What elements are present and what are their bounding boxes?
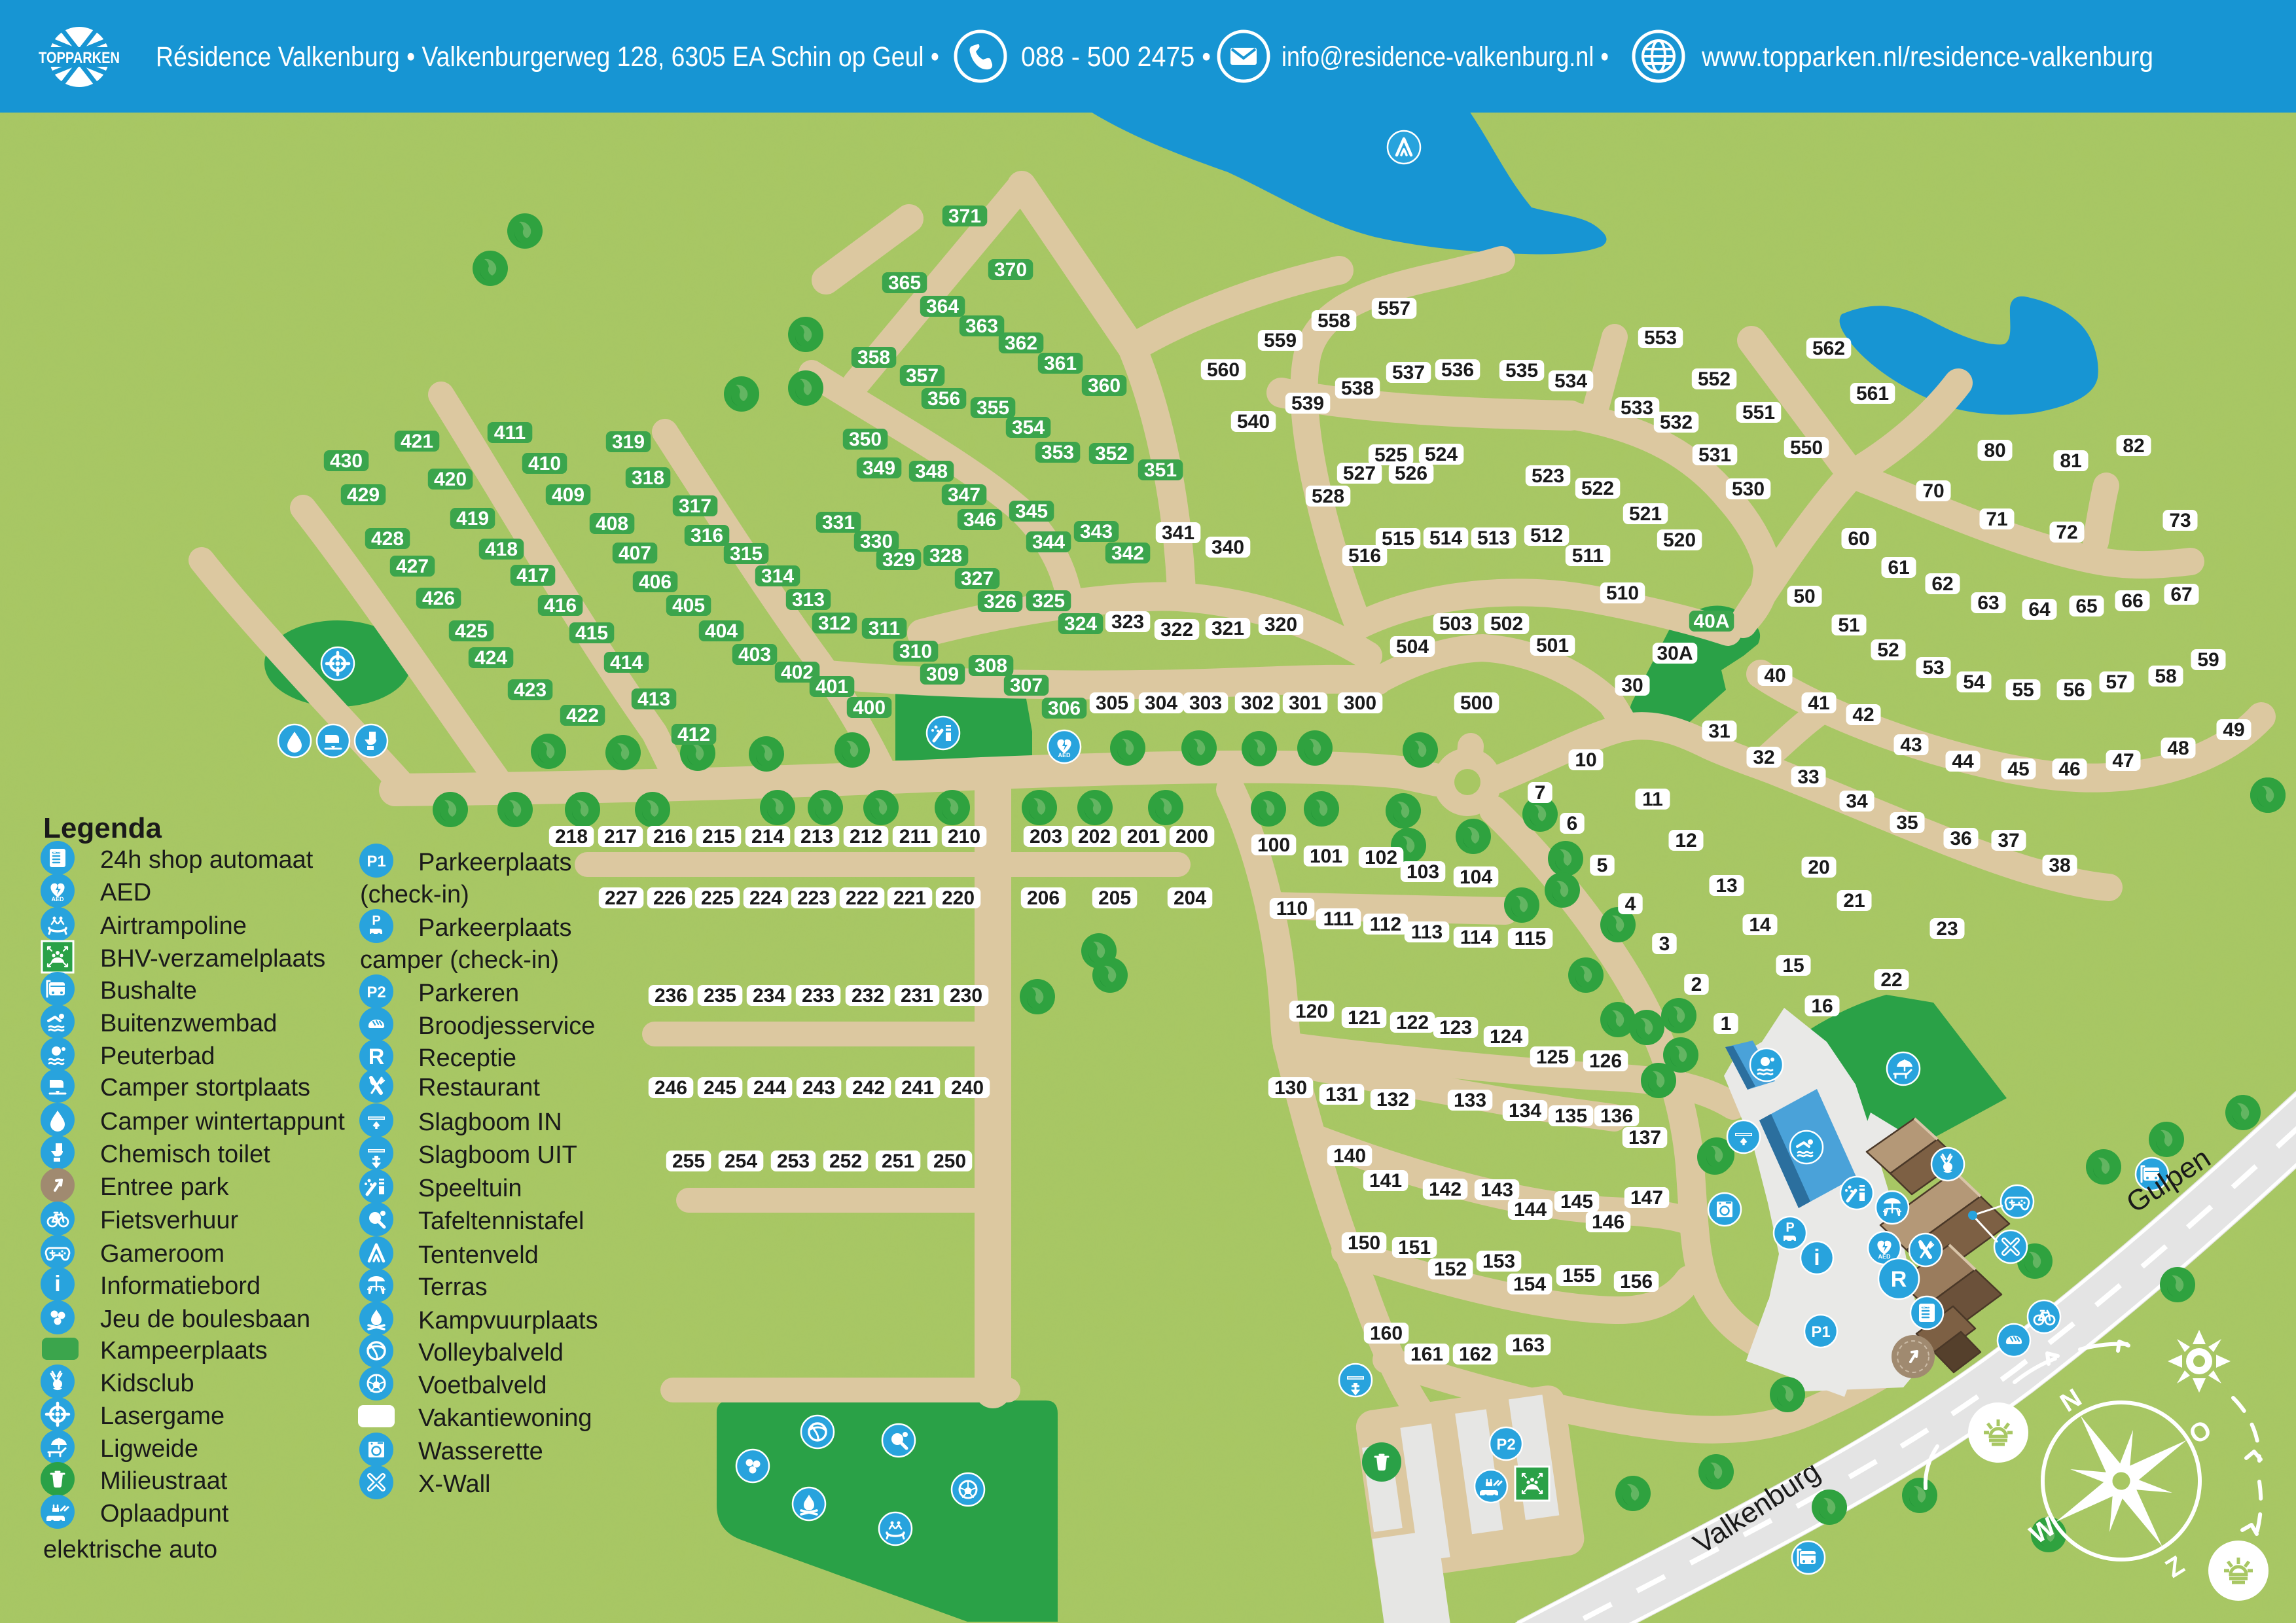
svg-text:341: 341 — [1162, 522, 1194, 544]
svg-text:4: 4 — [1625, 893, 1636, 915]
svg-text:211: 211 — [899, 826, 931, 847]
svg-text:42: 42 — [1852, 704, 1874, 726]
svg-text:408: 408 — [596, 513, 628, 535]
svg-text:217: 217 — [604, 826, 637, 847]
svg-text:1: 1 — [1721, 1013, 1732, 1035]
svg-text:523: 523 — [1532, 465, 1564, 487]
svg-text:243: 243 — [802, 1077, 835, 1099]
svg-text:126: 126 — [1589, 1050, 1622, 1072]
svg-text:315: 315 — [730, 543, 762, 565]
svg-text:141: 141 — [1369, 1170, 1402, 1192]
svg-text:525: 525 — [1374, 444, 1407, 466]
svg-text:534: 534 — [1554, 370, 1587, 392]
svg-text:350: 350 — [849, 429, 882, 450]
svg-text:413: 413 — [637, 688, 670, 710]
svg-text:Ligweide: Ligweide — [100, 1435, 198, 1463]
svg-text:22: 22 — [1880, 969, 1902, 991]
svg-text:P2: P2 — [1496, 1436, 1515, 1454]
svg-text:215: 215 — [702, 826, 735, 847]
svg-text:511: 511 — [1572, 545, 1604, 567]
svg-text:241: 241 — [901, 1077, 934, 1099]
svg-text:513: 513 — [1477, 527, 1510, 549]
svg-text:57: 57 — [2106, 671, 2127, 693]
svg-text:415: 415 — [575, 622, 608, 644]
svg-text:59: 59 — [2197, 649, 2219, 671]
svg-text:501: 501 — [1536, 635, 1569, 656]
svg-text:531: 531 — [1698, 444, 1731, 466]
svg-text:71: 71 — [1986, 508, 2007, 530]
svg-text:Voetbalveld: Voetbalveld — [418, 1372, 547, 1399]
svg-text:130: 130 — [1274, 1077, 1307, 1099]
svg-text:154: 154 — [1513, 1274, 1546, 1295]
svg-text:356: 356 — [927, 388, 960, 410]
svg-text:www.topparken.nl/residence-val: www.topparken.nl/residence-valkenburg — [1701, 41, 2153, 73]
svg-text:402: 402 — [781, 662, 814, 683]
svg-text:539: 539 — [1291, 393, 1324, 414]
svg-text:6: 6 — [1567, 813, 1578, 834]
svg-text:202: 202 — [1078, 826, 1111, 847]
svg-text:14: 14 — [1749, 914, 1771, 936]
svg-text:10: 10 — [1575, 749, 1596, 771]
svg-text:246: 246 — [655, 1077, 687, 1099]
svg-text:423: 423 — [514, 679, 547, 701]
svg-text:419: 419 — [456, 508, 489, 529]
svg-text:Buitenzwembad: Buitenzwembad — [100, 1010, 277, 1037]
svg-text:44: 44 — [1952, 751, 1974, 772]
svg-text:33: 33 — [1797, 766, 1819, 788]
svg-text:201: 201 — [1127, 826, 1160, 847]
svg-text:418: 418 — [485, 539, 518, 560]
svg-text:Legenda: Legenda — [43, 812, 162, 844]
svg-text:302: 302 — [1241, 692, 1274, 714]
svg-text:30A: 30A — [1657, 643, 1693, 664]
svg-text:213: 213 — [800, 826, 833, 847]
svg-text:342: 342 — [1111, 543, 1144, 564]
svg-text:214: 214 — [751, 826, 784, 847]
svg-text:81: 81 — [2060, 450, 2081, 472]
svg-text:Vakantiewoning: Vakantiewoning — [418, 1404, 592, 1432]
svg-text:12: 12 — [1675, 830, 1696, 851]
svg-text:34: 34 — [1846, 791, 1868, 812]
svg-text:X-Wall: X-Wall — [418, 1471, 490, 1498]
svg-text:522: 522 — [1581, 478, 1614, 499]
svg-text:Bushalte: Bushalte — [100, 977, 197, 1005]
svg-text:16: 16 — [1811, 995, 1833, 1017]
svg-text:142: 142 — [1429, 1179, 1462, 1200]
svg-text:351: 351 — [1144, 459, 1177, 481]
svg-text:560: 560 — [1207, 359, 1240, 381]
svg-text:226: 226 — [653, 887, 686, 909]
svg-text:206: 206 — [1027, 887, 1060, 909]
svg-text:41: 41 — [1808, 692, 1829, 714]
svg-text:122: 122 — [1396, 1012, 1429, 1033]
svg-text:24h: 24h — [53, 848, 62, 854]
svg-text:Milieustraat: Milieustraat — [100, 1467, 228, 1495]
svg-text:203: 203 — [1030, 826, 1062, 847]
svg-text:49: 49 — [2223, 719, 2244, 741]
svg-text:521: 521 — [1629, 503, 1662, 525]
svg-text:58: 58 — [2155, 666, 2176, 687]
svg-text:224: 224 — [749, 887, 782, 909]
svg-text:40: 40 — [1764, 665, 1785, 687]
svg-text:312: 312 — [818, 613, 851, 634]
svg-text:361: 361 — [1044, 353, 1077, 374]
svg-text:303: 303 — [1189, 692, 1222, 714]
svg-text:411: 411 — [494, 422, 526, 444]
svg-text:346: 346 — [963, 509, 996, 531]
svg-text:Volleybalveld: Volleybalveld — [418, 1339, 564, 1366]
svg-text:552: 552 — [1698, 368, 1731, 390]
svg-text:Terras: Terras — [418, 1274, 488, 1301]
svg-text:221: 221 — [893, 887, 926, 909]
svg-text:5: 5 — [1597, 855, 1608, 876]
svg-text:218: 218 — [555, 826, 588, 847]
svg-text:elektrische auto: elektrische auto — [43, 1536, 217, 1563]
svg-text:425: 425 — [455, 620, 488, 642]
svg-text:210: 210 — [948, 826, 980, 847]
svg-text:504: 504 — [1396, 636, 1429, 658]
svg-text:354: 354 — [1012, 417, 1045, 438]
svg-text:223: 223 — [797, 887, 830, 909]
svg-text:P: P — [1785, 1221, 1794, 1235]
svg-text:427: 427 — [396, 556, 429, 577]
svg-text:409: 409 — [552, 484, 584, 506]
svg-text:Gameroom: Gameroom — [100, 1240, 224, 1268]
svg-text:38: 38 — [2049, 855, 2070, 876]
svg-text:242: 242 — [852, 1077, 885, 1099]
svg-text:info@residence-valkenburg.nl •: info@residence-valkenburg.nl • — [1282, 41, 1609, 73]
svg-text:62: 62 — [1931, 573, 1953, 595]
svg-text:405: 405 — [672, 595, 705, 616]
svg-text:314: 314 — [761, 565, 794, 587]
svg-text:403: 403 — [738, 644, 771, 666]
svg-text:152: 152 — [1434, 1258, 1467, 1280]
svg-text:550: 550 — [1790, 437, 1823, 459]
svg-text:234: 234 — [753, 985, 785, 1007]
svg-text:307: 307 — [1010, 675, 1043, 696]
svg-text:Fietsverhuur: Fietsverhuur — [100, 1207, 239, 1234]
svg-text:40A: 40A — [1693, 611, 1729, 632]
svg-text:camper (check-in): camper (check-in) — [360, 946, 559, 974]
svg-text:300: 300 — [1344, 692, 1376, 714]
svg-text:320: 320 — [1265, 614, 1297, 635]
svg-text:AED: AED — [1878, 1253, 1891, 1260]
svg-text:406: 406 — [639, 571, 672, 593]
svg-text:(check-in): (check-in) — [360, 881, 469, 908]
svg-text:Entree park: Entree park — [100, 1173, 229, 1201]
svg-text:325: 325 — [1032, 590, 1065, 612]
svg-text:362: 362 — [1005, 332, 1037, 354]
svg-text:245: 245 — [704, 1077, 736, 1099]
svg-text:113: 113 — [1411, 921, 1443, 943]
svg-text:561: 561 — [1856, 383, 1889, 404]
svg-text:Airtrampoline: Airtrampoline — [100, 912, 247, 940]
svg-text:421: 421 — [401, 431, 433, 452]
svg-text:52: 52 — [1877, 639, 1899, 661]
svg-text:236: 236 — [655, 985, 687, 1007]
svg-text:124: 124 — [1490, 1026, 1522, 1048]
svg-text:TOPPARKEN: TOPPARKEN — [39, 49, 120, 67]
svg-text:54: 54 — [1963, 671, 1985, 693]
svg-text:Slagboom IN: Slagboom IN — [418, 1109, 562, 1136]
svg-text:502: 502 — [1490, 613, 1523, 635]
svg-text:535: 535 — [1505, 360, 1538, 382]
svg-text:125: 125 — [1536, 1046, 1569, 1068]
svg-text:51: 51 — [1838, 615, 1859, 636]
svg-text:301: 301 — [1289, 692, 1321, 714]
svg-text:559: 559 — [1264, 330, 1297, 351]
svg-text:424: 424 — [475, 647, 507, 669]
svg-text:530: 530 — [1732, 478, 1765, 500]
svg-text:414: 414 — [610, 652, 643, 673]
svg-text:132: 132 — [1376, 1089, 1409, 1111]
svg-text:420: 420 — [434, 469, 467, 490]
svg-text:3: 3 — [1659, 933, 1670, 955]
svg-text:251: 251 — [882, 1150, 914, 1172]
svg-text:143: 143 — [1480, 1179, 1513, 1201]
svg-text:47: 47 — [2112, 750, 2134, 772]
svg-text:254: 254 — [725, 1150, 757, 1172]
svg-text:319: 319 — [612, 431, 645, 453]
svg-text:331: 331 — [822, 512, 855, 533]
svg-text:156: 156 — [1620, 1271, 1653, 1293]
svg-text:343: 343 — [1080, 521, 1113, 543]
svg-text:Camper stortplaats: Camper stortplaats — [100, 1074, 310, 1101]
svg-text:P1: P1 — [367, 853, 386, 870]
svg-text:401: 401 — [816, 676, 848, 698]
svg-text:306: 306 — [1048, 698, 1081, 719]
svg-text:430: 430 — [330, 450, 363, 472]
svg-text:311: 311 — [869, 618, 900, 639]
svg-text:70: 70 — [1922, 480, 1944, 502]
svg-text:205: 205 — [1098, 887, 1131, 909]
svg-text:240: 240 — [951, 1077, 984, 1099]
svg-text:160: 160 — [1370, 1323, 1403, 1344]
svg-text:510: 510 — [1606, 582, 1639, 604]
svg-text:317: 317 — [679, 495, 711, 517]
svg-text:AED: AED — [1058, 752, 1071, 758]
svg-text:67: 67 — [2170, 584, 2192, 605]
svg-text:Receptie: Receptie — [418, 1044, 516, 1072]
svg-text:115: 115 — [1515, 928, 1546, 950]
svg-text:P1: P1 — [1811, 1323, 1830, 1341]
svg-text:BHV-verzamelplaats: BHV-verzamelplaats — [100, 945, 325, 972]
svg-text:134: 134 — [1509, 1100, 1541, 1122]
svg-text:65: 65 — [2075, 596, 2097, 617]
svg-text:110: 110 — [1276, 898, 1308, 919]
svg-text:Jeu de boulesbaan: Jeu de boulesbaan — [100, 1306, 310, 1333]
svg-text:308: 308 — [975, 655, 1007, 677]
svg-text:227: 227 — [605, 887, 637, 909]
svg-text:358: 358 — [857, 347, 890, 368]
svg-text:102: 102 — [1365, 847, 1397, 868]
svg-text:Kampeerplaats: Kampeerplaats — [100, 1337, 268, 1364]
svg-text:Chemisch toilet: Chemisch toilet — [100, 1141, 270, 1168]
svg-text:45: 45 — [2007, 758, 2029, 780]
svg-text:348: 348 — [915, 461, 948, 482]
svg-text:133: 133 — [1454, 1090, 1486, 1111]
svg-text:43: 43 — [1900, 734, 1922, 756]
svg-text:352: 352 — [1095, 443, 1128, 465]
svg-text:2: 2 — [1691, 974, 1702, 995]
svg-text:233: 233 — [802, 985, 834, 1007]
svg-text:404: 404 — [705, 620, 738, 642]
svg-text:553: 553 — [1644, 327, 1677, 349]
svg-text:360: 360 — [1088, 375, 1121, 397]
svg-text:30: 30 — [1621, 675, 1643, 696]
svg-text:428: 428 — [371, 528, 404, 550]
svg-text:230: 230 — [950, 985, 982, 1007]
svg-text:345: 345 — [1015, 501, 1048, 522]
svg-text:309: 309 — [926, 664, 959, 685]
svg-text:212: 212 — [850, 826, 882, 847]
svg-text:232: 232 — [852, 985, 884, 1007]
svg-text:220: 220 — [942, 887, 975, 909]
svg-text:50: 50 — [1793, 586, 1815, 607]
svg-text:104: 104 — [1460, 866, 1492, 888]
svg-text:145: 145 — [1560, 1191, 1593, 1213]
svg-text:407: 407 — [619, 543, 651, 564]
svg-text:63: 63 — [1977, 592, 1999, 614]
svg-text:37: 37 — [1998, 830, 2019, 851]
svg-text:540: 540 — [1237, 411, 1270, 433]
svg-text:532: 532 — [1660, 412, 1693, 433]
svg-text:422: 422 — [566, 705, 599, 726]
svg-text:355: 355 — [977, 397, 1009, 419]
svg-text:Informatiebord: Informatiebord — [100, 1272, 260, 1300]
svg-text:AED: AED — [51, 896, 64, 902]
svg-text:Parkeren: Parkeren — [418, 980, 519, 1007]
svg-text:80: 80 — [1984, 440, 2005, 461]
svg-text:Parkeerplaats: Parkeerplaats — [418, 914, 571, 942]
svg-text:349: 349 — [863, 457, 895, 479]
svg-text:344: 344 — [1032, 531, 1065, 553]
svg-text:15: 15 — [1782, 955, 1804, 976]
svg-text:36: 36 — [1950, 828, 1971, 849]
svg-text:i: i — [54, 1272, 60, 1296]
svg-text:318: 318 — [632, 467, 664, 489]
svg-text:371: 371 — [948, 205, 981, 227]
svg-text:252: 252 — [829, 1150, 862, 1172]
svg-text:326: 326 — [984, 591, 1016, 613]
svg-text:7: 7 — [1535, 782, 1546, 804]
svg-text:225: 225 — [701, 887, 734, 909]
svg-text:AED: AED — [100, 879, 151, 906]
svg-text:253: 253 — [777, 1150, 810, 1172]
svg-text:Oplaadpunt: Oplaadpunt — [100, 1500, 229, 1527]
svg-text:316: 316 — [691, 525, 723, 546]
svg-text:329: 329 — [882, 549, 915, 571]
svg-text:Broodjesservice: Broodjesservice — [418, 1012, 595, 1040]
svg-text:72: 72 — [2056, 522, 2077, 543]
svg-text:60: 60 — [1848, 528, 1869, 550]
svg-text:Kampvuurplaats: Kampvuurplaats — [418, 1307, 598, 1334]
svg-text:538: 538 — [1341, 378, 1374, 399]
svg-text:365: 365 — [888, 272, 921, 294]
svg-text:Camper wintertappunt: Camper wintertappunt — [100, 1108, 345, 1135]
svg-text:111: 111 — [1323, 908, 1354, 930]
svg-text:31: 31 — [1708, 721, 1730, 742]
svg-text:304: 304 — [1145, 692, 1177, 714]
svg-text:551: 551 — [1742, 402, 1775, 423]
svg-text:313: 313 — [792, 589, 825, 611]
svg-text:426: 426 — [422, 588, 455, 609]
svg-text:R: R — [1891, 1267, 1907, 1292]
svg-text:24h: 24h — [1922, 1303, 1931, 1309]
svg-text:120: 120 — [1295, 1001, 1328, 1022]
svg-text:537: 537 — [1392, 362, 1425, 383]
svg-text:204: 204 — [1174, 887, 1206, 909]
svg-text:536: 536 — [1441, 359, 1474, 381]
svg-text:73: 73 — [2169, 510, 2191, 531]
svg-text:429: 429 — [347, 484, 380, 506]
svg-text:48: 48 — [2167, 738, 2189, 759]
svg-text:514: 514 — [1429, 527, 1462, 549]
svg-text:527: 527 — [1343, 463, 1376, 484]
svg-text:305: 305 — [1096, 692, 1128, 714]
svg-text:Résidence Valkenburg • Valkenb: Résidence Valkenburg • Valkenburgerweg 1… — [156, 41, 939, 73]
svg-text:400: 400 — [853, 697, 886, 719]
svg-text:515: 515 — [1382, 528, 1414, 550]
svg-text:11: 11 — [1642, 789, 1663, 810]
svg-text:Tafeltennistafel: Tafeltennistafel — [418, 1207, 584, 1235]
svg-text:416: 416 — [544, 595, 577, 616]
svg-text:121: 121 — [1348, 1007, 1380, 1029]
svg-text:364: 364 — [926, 296, 959, 317]
svg-text:520: 520 — [1663, 529, 1696, 551]
svg-text:147: 147 — [1630, 1187, 1663, 1209]
svg-text:558: 558 — [1318, 310, 1350, 332]
svg-text:150: 150 — [1348, 1232, 1380, 1254]
svg-text:363: 363 — [965, 315, 998, 337]
svg-text:135: 135 — [1554, 1105, 1587, 1127]
svg-text:322: 322 — [1160, 619, 1193, 641]
svg-text:357: 357 — [906, 365, 939, 387]
svg-text:112: 112 — [1370, 914, 1401, 935]
svg-text:533: 533 — [1621, 397, 1653, 419]
svg-text:562: 562 — [1812, 338, 1845, 359]
svg-text:516: 516 — [1348, 545, 1381, 567]
svg-text:370: 370 — [994, 259, 1027, 281]
svg-text:123: 123 — [1439, 1017, 1472, 1039]
svg-text:528: 528 — [1312, 486, 1344, 507]
svg-text:i: i — [1814, 1245, 1820, 1270]
svg-text:46: 46 — [2058, 758, 2080, 780]
svg-text:53: 53 — [1922, 657, 1944, 679]
svg-text:Tentenveld: Tentenveld — [418, 1241, 539, 1269]
svg-text:Kidsclub: Kidsclub — [100, 1370, 194, 1397]
svg-text:231: 231 — [901, 985, 933, 1007]
svg-text:328: 328 — [929, 545, 962, 567]
svg-text:13: 13 — [1715, 875, 1737, 897]
svg-text:153: 153 — [1482, 1251, 1515, 1272]
svg-text:Speeltuin: Speeltuin — [418, 1175, 522, 1202]
svg-text:32: 32 — [1753, 747, 1774, 768]
svg-text:321: 321 — [1211, 618, 1244, 639]
svg-text:500: 500 — [1460, 692, 1493, 714]
svg-text:144: 144 — [1514, 1199, 1547, 1221]
svg-text:P: P — [372, 914, 380, 928]
svg-text:503: 503 — [1439, 613, 1472, 635]
svg-text:353: 353 — [1041, 442, 1074, 463]
svg-text:244: 244 — [753, 1077, 786, 1099]
svg-text:Peuterbad: Peuterbad — [100, 1043, 215, 1070]
svg-text:64: 64 — [2028, 599, 2051, 620]
svg-text:P2: P2 — [367, 984, 386, 1001]
svg-text:140: 140 — [1333, 1145, 1366, 1167]
svg-text:Parkeerplaats: Parkeerplaats — [418, 849, 571, 876]
svg-text:524: 524 — [1425, 444, 1458, 465]
